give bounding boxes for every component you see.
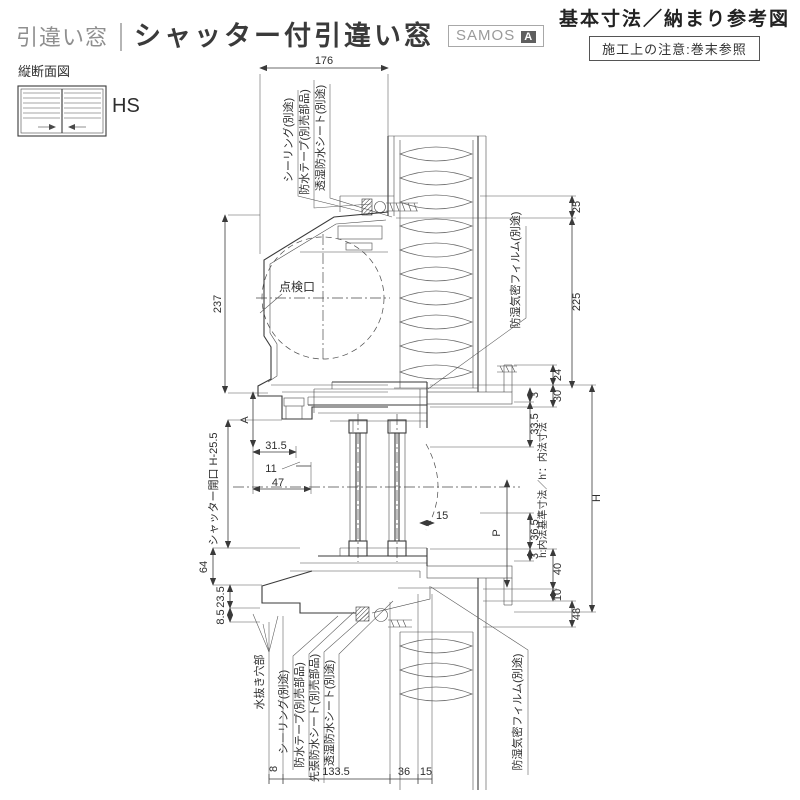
dim-225: 225 <box>571 293 583 311</box>
page: 縦断面図 HS 176 <box>0 0 800 800</box>
dim-b15: 15 <box>420 766 432 778</box>
dim-64: 64 <box>198 561 210 573</box>
page-title: シャッター付引違い窓 <box>134 21 434 51</box>
label-inner-note: h:内法基準寸法／h'：内法寸法 <box>536 422 549 558</box>
label-tape-bottom: 防水テープ(別売部品) <box>292 662 306 768</box>
brand-name: SAMOS <box>456 27 515 44</box>
dim-10: 10 <box>552 589 564 601</box>
insulation-top <box>400 147 472 379</box>
side-view-icon: 縦断面図 HS <box>18 64 140 136</box>
dim-11: 11 <box>265 463 276 475</box>
section-drawing: 縦断面図 HS 176 <box>0 0 800 800</box>
insulation-bottom <box>400 639 472 701</box>
category-title: 引違い窓 <box>16 25 108 50</box>
label-tape-top: 防水テープ(別売部品) <box>297 89 311 195</box>
fastener-top <box>375 202 386 213</box>
label-pre-sheet-bottom: 先張防水シート(別売部品) <box>307 654 321 782</box>
header: 引違い窓シャッター付引違い窓SAMOSA 基本寸法／納まり参考図 施工上の注意:… <box>0 0 800 58</box>
dim-b133-5: 133.5 <box>322 766 350 778</box>
dim-24: 24 <box>552 369 564 381</box>
side-view-label: 縦断面図 <box>18 64 70 79</box>
dim-31-5: 31.5 <box>265 440 286 452</box>
dim-b8: 8 <box>268 766 280 772</box>
dim-23-5: 23.5 <box>215 586 227 607</box>
left-dimensions: 237 A 31.5 11 47 シャッター開口 H-25.5 64 23.5 <box>198 215 311 625</box>
samos-badge: SAMOSA <box>448 25 544 47</box>
label-drain-hole: 水抜き穴部 <box>252 655 266 710</box>
dim-48: 48 <box>571 608 583 620</box>
frame-sill <box>262 548 430 613</box>
bottom-annotations: 水抜き穴部 シーリング(別途) 防水テープ(別売部品) 先張防水シート(別売部品… <box>252 601 393 783</box>
dim-3-top: 3 <box>529 392 541 398</box>
label-shutter-opening: シャッター開口 H-25.5 <box>207 432 220 545</box>
bottom-dimensions: 8 133.5 36 15 <box>268 594 432 784</box>
construction-note: 施工上の注意:巻末参照 <box>589 36 760 61</box>
casing-boards <box>427 365 512 605</box>
sashes <box>349 414 438 562</box>
shutter-box: 点検口 <box>256 196 394 419</box>
window-frame <box>233 382 520 613</box>
dim-30: 30 <box>552 390 564 402</box>
dim-A: A <box>239 416 251 424</box>
screw-head-casing <box>497 366 517 372</box>
dim-40: 40 <box>552 563 564 575</box>
label-sealing-top: シーリング(別途) <box>281 98 295 182</box>
window-type-label: HS <box>112 95 140 117</box>
title-divider <box>120 23 122 51</box>
subtitle: 基本寸法／納まり参考図 <box>559 4 790 31</box>
dim-H: H <box>591 494 603 502</box>
label-film-top: 防湿気密フィルム(別途) <box>508 212 522 329</box>
dim-237: 237 <box>212 295 224 313</box>
seal-block-top <box>362 199 372 215</box>
dim-25: 25 <box>571 201 583 213</box>
top-annotations: シーリング(別途) 防水テープ(別売部品) 透湿防水シート(別途) <box>281 80 392 217</box>
dim-8-5: 8.5 <box>215 609 227 624</box>
screw-bottom <box>388 620 412 627</box>
screw-top <box>386 203 418 211</box>
label-film-bottom: 防湿気密フィルム(別途) <box>510 654 524 771</box>
label-sheet-top: 透湿防水シート(別途) <box>313 85 327 191</box>
wall-section <box>388 136 486 790</box>
dim-47: 47 <box>272 477 284 489</box>
fastener-bottom <box>375 609 388 622</box>
label-inspection-port: 点検口 <box>279 280 315 294</box>
dim-b36: 36 <box>398 766 410 778</box>
dim-15-mid: 15 <box>436 510 448 522</box>
brand-grade-badge: A <box>521 31 536 43</box>
label-sheet-bottom: 透湿防水シート(別途) <box>322 660 336 766</box>
dim-P: P <box>491 529 503 536</box>
